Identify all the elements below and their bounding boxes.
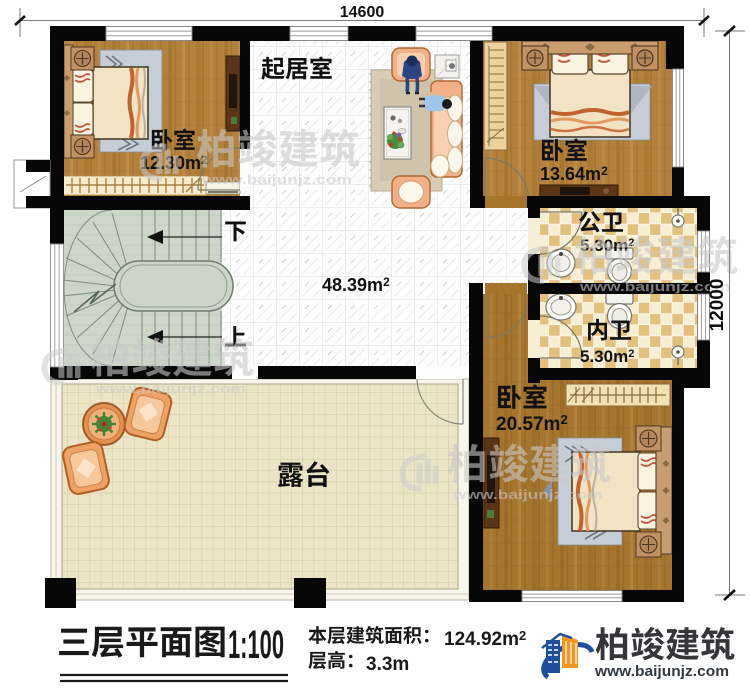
svg-text:5.30m2: 5.30m2 bbox=[580, 347, 634, 366]
svg-text:48.39m2: 48.39m2 bbox=[322, 275, 390, 295]
svg-text:13.64m2: 13.64m2 bbox=[540, 164, 608, 184]
svg-text:www.baijunjz.com: www.baijunjz.com bbox=[452, 487, 603, 502]
svg-text:1:100: 1:100 bbox=[228, 623, 284, 667]
svg-text:www.baijunjz.com: www.baijunjz.com bbox=[201, 172, 352, 187]
svg-text:12000: 12000 bbox=[707, 279, 728, 332]
svg-text:124.92m2: 124.92m2 bbox=[444, 628, 526, 650]
svg-text:3.3m: 3.3m bbox=[366, 654, 409, 675]
svg-text:14600: 14600 bbox=[340, 4, 385, 21]
svg-text:20.57m2: 20.57m2 bbox=[496, 412, 568, 435]
svg-text:www.baijunjz.com: www.baijunjz.com bbox=[95, 381, 246, 396]
svg-text:www.baijunjz.com: www.baijunjz.com bbox=[594, 664, 729, 680]
